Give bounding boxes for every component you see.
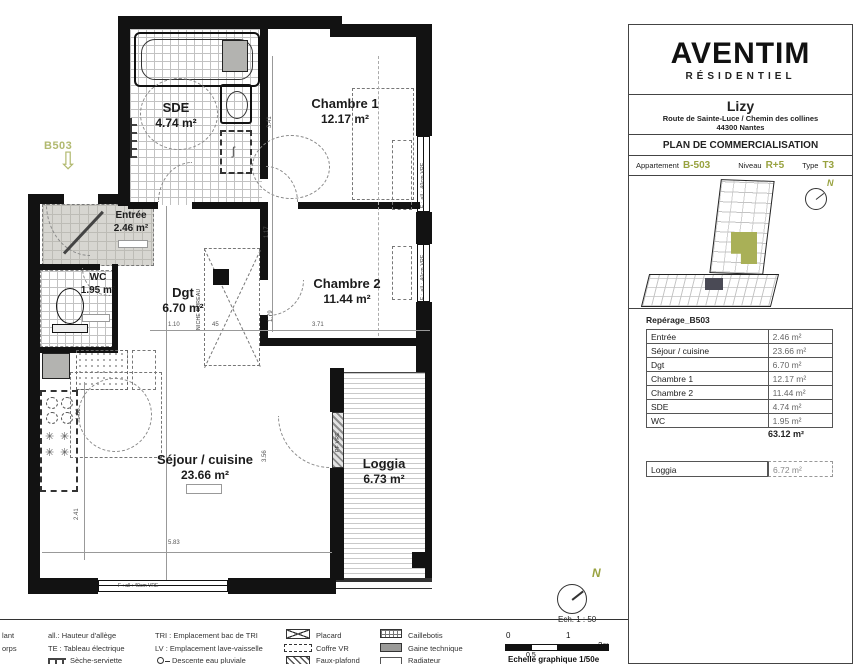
- room-area: 4.74 m²: [136, 116, 216, 131]
- table-row: Entrée 2.46 m²: [647, 330, 832, 344]
- cooktop-burner: [46, 412, 58, 424]
- wall-segment: [40, 194, 64, 204]
- row-room: SDE: [647, 400, 768, 413]
- legend-item: TE : Tableau électrique: [48, 644, 125, 653]
- wall-segment: [425, 372, 432, 580]
- doc-title: PLAN DE COMMERCIALISATION: [629, 135, 852, 151]
- radiateur-icon: [380, 657, 402, 664]
- wall-segment: [118, 16, 130, 206]
- table-row: Chambre 1 12.17 m²: [647, 372, 832, 386]
- dim-line: [84, 382, 85, 560]
- dim-value: 3.71: [312, 322, 324, 328]
- north-label: N: [592, 566, 601, 580]
- row-room: Chambre 1: [647, 372, 768, 385]
- table-row: WC 1.95 m²: [647, 414, 832, 428]
- gaine-technique-icon: [380, 643, 402, 652]
- wall-segment: [118, 16, 338, 29]
- dim-value: 1.10: [168, 322, 180, 328]
- loggia-row: Loggia 6.72 m²: [646, 461, 833, 477]
- dim-line: [150, 330, 430, 331]
- room-area: 6.73 m²: [346, 472, 422, 487]
- legend-item: all.: Hauteur d'allège: [48, 631, 116, 640]
- room-name: WC: [68, 272, 128, 285]
- brand-name: AVENTIM: [629, 37, 852, 71]
- row-room: Séjour / cuisine: [647, 344, 768, 357]
- burner-star: ✳: [60, 430, 69, 443]
- legend-item: LV : Emplacement lave-vaisselle: [155, 644, 263, 653]
- dim-value: 5.83: [168, 540, 180, 546]
- wall-segment: [330, 368, 344, 412]
- row-area: 6.70 m²: [768, 358, 832, 371]
- room-label-dgt: Dgt 6.70 m²: [148, 285, 218, 316]
- room-label-wc: WC 1.95 m²: [68, 272, 128, 297]
- areas-section: Repérage_B503 Entrée 2.46 m² Séjour / cu…: [629, 309, 852, 484]
- hsp-tag: [118, 240, 148, 248]
- lave-linge-glyph: ʃ: [232, 144, 235, 158]
- legend-item: Descente eau pluviale: [172, 656, 246, 664]
- room-area: 11.44 m²: [282, 292, 412, 307]
- burner-star: ✳: [60, 446, 69, 459]
- row-room: Dgt: [647, 358, 768, 371]
- entry-arrow-icon: ⇩: [58, 150, 78, 174]
- room-area: 6.70 m²: [148, 301, 218, 316]
- row-area: 1.95 m²: [768, 414, 832, 427]
- row-area: 12.17 m²: [768, 372, 832, 385]
- hsp-tag: [186, 484, 222, 494]
- row-room: Loggia: [646, 461, 768, 477]
- table-row: Chambre 2 11.44 m²: [647, 386, 832, 400]
- dim-line: [42, 552, 332, 553]
- wall-segment: [98, 194, 118, 204]
- room-label-chambre2: Chambre 2 11.44 m²: [282, 276, 412, 307]
- washbasin-bowl: [226, 91, 248, 119]
- room-name: SDE: [136, 100, 216, 116]
- wall-segment: [416, 24, 432, 136]
- wall-segment: [412, 552, 432, 568]
- toilet-tank: [52, 324, 88, 333]
- legend-item: TRI : Emplacement bac de TRI: [155, 631, 258, 640]
- brand-section: AVENTIM RÉSIDENTIEL: [629, 25, 852, 95]
- legend-item: Placard: [316, 631, 341, 640]
- legend-item: Sèche-serviette: [70, 656, 122, 664]
- wall-segment: [260, 209, 268, 280]
- wall-segment: [28, 194, 40, 594]
- gaine-black: [213, 269, 229, 285]
- wall-segment: [336, 578, 432, 582]
- cooktop-burner: [46, 397, 58, 409]
- compass-needle: [816, 193, 824, 200]
- dim-value: 3.41: [267, 116, 273, 128]
- site-key-plan: N: [629, 176, 852, 309]
- areas-table: Entrée 2.46 m² Séjour / cuisine 23.66 m²…: [646, 329, 833, 428]
- project-section: Lizy Route de Sainte-Luce / Chemin des c…: [629, 95, 852, 135]
- table-title: Repérage_B503: [646, 315, 710, 325]
- divider: [0, 619, 628, 620]
- door-swing: [278, 416, 330, 468]
- window-label: F : all : 40cm VRE: [118, 583, 158, 589]
- row-area: 4.74 m²: [768, 400, 832, 413]
- table-row: Séjour / cuisine 23.66 m²: [647, 344, 832, 358]
- burner-star: ✳: [45, 430, 54, 443]
- room-label-loggia: Loggia 6.73 m²: [346, 456, 422, 487]
- row-room: Entrée: [647, 330, 768, 343]
- site-block-core: [705, 278, 723, 290]
- wall-segment: [416, 302, 432, 372]
- gaine-technique-symbol: [222, 40, 248, 72]
- room-name: Chambre 2: [282, 276, 412, 292]
- caillebotis-icon: [380, 629, 402, 638]
- row-room: WC: [647, 414, 768, 427]
- dim-line: [166, 206, 167, 580]
- level-value: R+5: [766, 160, 785, 171]
- descente-eau-icon: [157, 657, 164, 664]
- legend-item: orps: [2, 644, 17, 653]
- pf-vre-label: PF VRE: [335, 432, 341, 452]
- brand-subtitle: RÉSIDENTIEL: [629, 71, 852, 82]
- row-room: Chambre 2: [647, 386, 768, 399]
- table-row: Dgt 6.70 m²: [647, 358, 832, 372]
- apartment-label: Appartement: [636, 161, 679, 170]
- legend-item: lant: [2, 631, 14, 640]
- site-compass-icon: [805, 188, 827, 210]
- legend-item: Caillebotis: [408, 631, 443, 640]
- faux-plafond-icon: [286, 656, 310, 664]
- room-label-entree: Entrée 2.46 m²: [96, 210, 166, 235]
- lave-linge-symbol: ʃ: [220, 130, 252, 174]
- room-name: Loggia: [346, 456, 422, 472]
- placard-icon: [286, 629, 310, 639]
- wall-segment: [260, 338, 432, 346]
- plan-de-commercialisation-sheet: B503 ⇩: [0, 0, 860, 664]
- table-total: 63.12 m²: [768, 429, 804, 439]
- legend-item: Gaine technique: [408, 644, 463, 653]
- room-area: 12.17 m²: [280, 112, 410, 127]
- type-value: T3: [822, 160, 834, 171]
- project-city: 44300 Nantes: [629, 123, 852, 132]
- project-address: Route de Sainte-Luce / Chemin des collin…: [629, 114, 852, 123]
- apartment-value: B-503: [683, 160, 710, 171]
- gaine-technique-symbol: [42, 353, 70, 379]
- legend-item: Faux-plafond: [316, 656, 360, 664]
- burner-star: ✳: [45, 446, 54, 459]
- wall-segment: [330, 468, 344, 580]
- wall-segment: [416, 212, 432, 244]
- washbasin-symbol: [220, 84, 252, 124]
- dim-line: [272, 56, 273, 332]
- wall-segment: [192, 202, 268, 209]
- row-area: 6.72 m²: [768, 461, 833, 477]
- unit-info-section: Appartement B-503 Niveau R+5 Type T3: [629, 156, 852, 176]
- wall-segment: [228, 578, 336, 594]
- room-area: 23.66 m²: [135, 468, 275, 483]
- room-name: Chambre 1: [280, 96, 410, 112]
- north-label: N: [827, 178, 834, 188]
- coffre-vr-zone: [392, 140, 412, 210]
- dim-value: 1.79: [268, 310, 274, 322]
- wall-segment: [128, 202, 158, 209]
- project-name: Lizy: [629, 98, 852, 114]
- legend-item: Radiateur: [408, 656, 441, 664]
- table-circle: [78, 378, 152, 452]
- room-area: 2.46 m²: [96, 223, 166, 236]
- room-label-chambre1: Chambre 1 12.17 m²: [280, 96, 410, 127]
- seche-serviette-icon: [48, 658, 66, 664]
- compass-needle: [572, 591, 584, 601]
- room-label-sde: SDE 4.74 m²: [136, 100, 216, 131]
- window-label: F : all : 40cm VRE: [420, 254, 426, 300]
- floor-plan: B503 ⇩: [0, 0, 625, 620]
- table-row: SDE 4.74 m²: [647, 400, 832, 414]
- dim-value: 45: [212, 322, 219, 328]
- dim-value: 1.86: [76, 408, 82, 420]
- coffre-vr-icon: [284, 644, 312, 652]
- wall-segment: [336, 588, 432, 589]
- room-name: Séjour / cuisine: [135, 452, 275, 468]
- wall-segment: [28, 578, 98, 594]
- legend-item: Coffre VR: [316, 644, 349, 653]
- dim-value: 3.56: [262, 450, 268, 462]
- type-label: Type: [802, 161, 818, 170]
- legend: lant orps all.: Hauteur d'allège TE : Ta…: [0, 618, 628, 664]
- row-area: 2.46 m²: [768, 330, 832, 343]
- room-name: Dgt: [148, 285, 218, 301]
- window-label: F : all : 40cm VRE: [420, 162, 426, 208]
- north-compass-icon: [557, 584, 587, 614]
- dim-value: 2.41: [74, 508, 80, 520]
- dim-value: 1.17: [264, 226, 270, 238]
- title-block: AVENTIM RÉSIDENTIEL Lizy Route de Sainte…: [628, 24, 853, 664]
- room-name: Entrée: [96, 210, 166, 223]
- level-label: Niveau: [738, 161, 761, 170]
- room-label-sejour: Séjour / cuisine 23.66 m²: [135, 452, 275, 483]
- row-area: 23.66 m²: [768, 344, 832, 357]
- room-area: 1.95 m²: [68, 285, 128, 298]
- row-area: 11.44 m²: [768, 386, 832, 399]
- doc-title-section: PLAN DE COMMERCIALISATION: [629, 135, 852, 156]
- hsp-tag: [82, 314, 110, 322]
